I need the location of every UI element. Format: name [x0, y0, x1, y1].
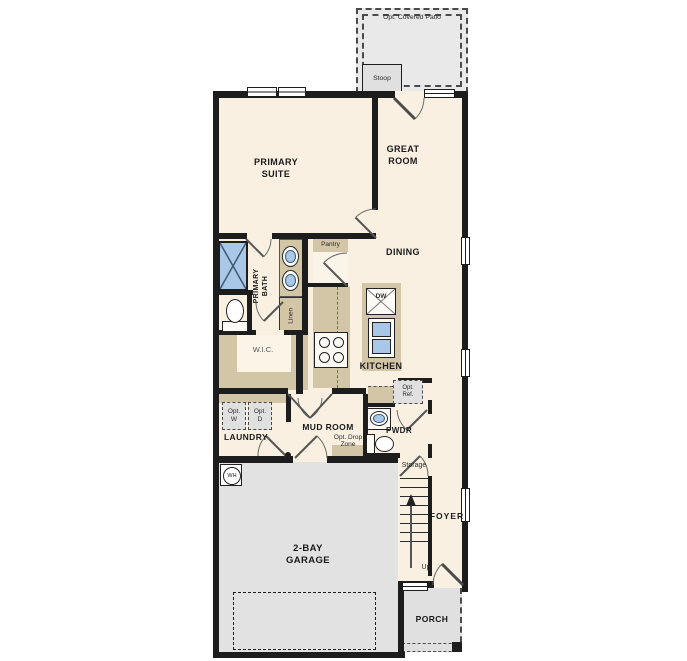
wic-label: W.I.C. [240, 346, 286, 355]
wall-wic-kitchen [296, 330, 303, 394]
linen-label: Linen [287, 304, 294, 328]
vanity-sink-1-basin [285, 250, 296, 263]
drop-zone-label: Opt. Drop Zone [328, 434, 368, 449]
ref-nook-counter [368, 386, 393, 404]
island-sink-basin-1 [372, 322, 391, 337]
mud-room-double-doors [288, 394, 332, 420]
window [247, 87, 277, 97]
vanity-sink-2 [282, 270, 299, 291]
opt-dryer: Opt. D [248, 402, 272, 430]
primary-toilet-bowl [226, 299, 244, 323]
opt-washer-label: Opt. W [228, 408, 240, 424]
window [402, 582, 428, 591]
burner [319, 352, 330, 363]
wall-mudroom-top-right [332, 388, 366, 394]
wall-pwdr-right-stub-bottom [428, 444, 432, 458]
door-hinge-dot [285, 452, 291, 458]
wall-garage-top-left [213, 456, 293, 463]
burner [333, 337, 344, 348]
pwdr-label: PWDR [378, 426, 420, 436]
entry-door-opening [395, 91, 424, 98]
wic-door-opening [256, 330, 284, 335]
entry-door [394, 98, 424, 128]
porch-column [452, 642, 462, 652]
opt-ref-label: Opt. Ref. [402, 385, 413, 399]
shower-glass-x [220, 243, 246, 289]
island-sink-basin-2 [372, 339, 391, 354]
wall-laundry-top-left [213, 388, 288, 394]
opt-washer: Opt. W [222, 402, 246, 430]
dishwasher-label: DW [366, 293, 396, 300]
porch-label: PORCH [404, 614, 460, 625]
garage-label: 2-BAY GARAGE [263, 543, 353, 568]
wall-pwdr-right-stub-top [428, 400, 432, 414]
pwdr-sink-basin [373, 414, 384, 423]
laundry-label: LAUNDRY [216, 432, 276, 443]
front-door [433, 555, 463, 585]
window [461, 349, 470, 377]
vanity-sink-1 [282, 246, 299, 267]
stove [314, 332, 348, 368]
wall-pwdr-top [363, 403, 395, 407]
primary-suite-door [347, 209, 376, 238]
mud-room-label: MUD ROOM [294, 422, 362, 433]
dining-label: DINING [375, 247, 431, 259]
window [424, 89, 455, 98]
great-room-label: GREAT ROOM [375, 144, 431, 167]
wall-stairs-right [428, 476, 432, 576]
opt-ref: Opt. Ref. [393, 380, 423, 404]
water-heater: WH [223, 467, 241, 485]
opt-dryer-label: Opt. D [254, 408, 266, 424]
garage-bay-dashed [233, 592, 376, 650]
primary-suite-label: PRIMARY SUITE [243, 157, 309, 180]
stairs-up-arrow [404, 494, 418, 572]
window [461, 237, 470, 265]
kitchen-label: KITCHEN [352, 361, 410, 373]
burner [333, 352, 344, 363]
storage-label: Storage [396, 462, 432, 470]
primary-bath-door [246, 239, 271, 264]
foyer-label: FOYER [425, 511, 469, 522]
wall-garage-top-right [327, 456, 398, 463]
wall-left [213, 91, 219, 658]
stoop-label: Stoop [364, 75, 400, 83]
burner [319, 337, 330, 348]
window [278, 87, 306, 97]
patio-label: Opt. Covered Patio [360, 14, 464, 22]
pwdr-sink [370, 411, 388, 426]
pantry-label: Pantry [313, 241, 348, 248]
pwdr-toilet-bowl [375, 436, 394, 452]
vanity-sink-2-basin [285, 274, 296, 287]
primary-bath-label: PRIMARY BATH [252, 263, 274, 309]
shower [218, 241, 248, 291]
pantry-door [314, 253, 347, 286]
floor-plan: Opt. Covered Patio Stoop PORCH [0, 0, 687, 661]
wall-garage-bottom [213, 652, 405, 658]
up-label: Up [418, 564, 434, 572]
